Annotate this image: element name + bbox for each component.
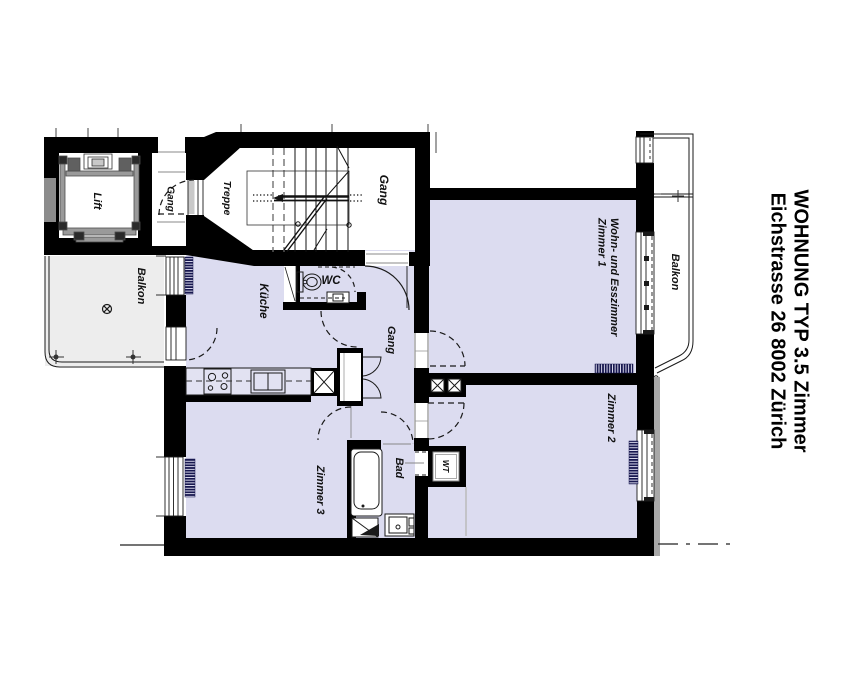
svg-text:Zimmer 3: Zimmer 3 bbox=[314, 465, 326, 515]
svg-text:Wohn- und Esszimmer: Wohn- und Esszimmer bbox=[608, 218, 620, 337]
svg-text:WT: WT bbox=[441, 460, 450, 474]
svg-text:Küche: Küche bbox=[257, 283, 269, 319]
svg-text:Balkon: Balkon bbox=[135, 268, 147, 305]
svg-text:Gang: Gang bbox=[377, 175, 391, 206]
svg-text:Lift: Lift bbox=[91, 192, 103, 210]
svg-text:Balkon: Balkon bbox=[669, 254, 681, 291]
svg-text:Zimmer 2: Zimmer 2 bbox=[605, 393, 617, 443]
svg-text:WC: WC bbox=[321, 275, 341, 287]
svg-text:Gang: Gang bbox=[385, 326, 397, 354]
svg-text:Bad: Bad bbox=[393, 458, 405, 479]
svg-text:Eichstrasse 26 8002 Zürich: Eichstrasse 26 8002 Zürich bbox=[767, 193, 789, 450]
svg-text:Treppe: Treppe bbox=[221, 181, 233, 216]
svg-text:WOHNUNG TYP 3.5 Zimmer: WOHNUNG TYP 3.5 Zimmer bbox=[790, 189, 812, 452]
svg-text:Gang: Gang bbox=[164, 186, 175, 212]
svg-text:Zimmer 1: Zimmer 1 bbox=[596, 217, 608, 267]
